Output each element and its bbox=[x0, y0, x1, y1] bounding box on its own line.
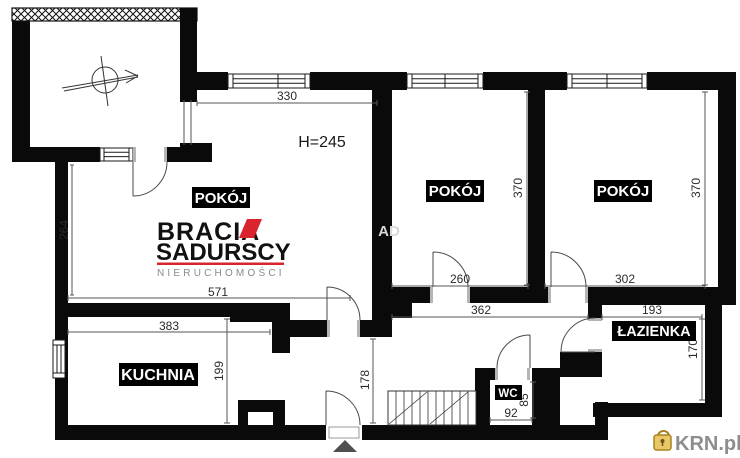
dim-330: 330 bbox=[277, 89, 297, 103]
balcony-left-wall bbox=[12, 8, 30, 160]
window-room1 bbox=[228, 74, 310, 88]
brand-line2: SADURSCY bbox=[156, 239, 291, 266]
north-arrow-icon bbox=[62, 56, 138, 106]
bottom-wall-left bbox=[55, 425, 326, 440]
dim-370-room2: 370 bbox=[511, 178, 525, 198]
balcony-door bbox=[133, 162, 167, 196]
brand-watermark-fragment: AD bbox=[378, 223, 400, 240]
wc-door bbox=[497, 335, 530, 368]
room-label-lazienka: ŁAZIENKA bbox=[617, 324, 691, 340]
room-label-kuchnia: KUCHNIA bbox=[121, 367, 195, 384]
brand-divider bbox=[157, 263, 284, 266]
room-label-wc: WC bbox=[498, 388, 517, 400]
dim-178: 178 bbox=[358, 370, 372, 390]
bathroom-bottom-wall bbox=[593, 403, 722, 417]
dim-92: 92 bbox=[504, 406, 518, 420]
balcony-railing bbox=[184, 100, 191, 145]
brand-tagline: NIERUCHOMOŚCI bbox=[157, 266, 285, 279]
balcony-corner-wall bbox=[180, 143, 212, 162]
ceiling-height-note: H=245 bbox=[298, 134, 346, 151]
wc-left-wall bbox=[475, 368, 490, 440]
window-kitchen bbox=[53, 340, 65, 378]
floor-plan: 330 571 383 260 302 362 193 92 264 199 1… bbox=[0, 0, 740, 458]
krn-watermark: KRN.pl bbox=[654, 431, 740, 455]
window-room2 bbox=[407, 74, 483, 88]
krn-logo-text: KRN.pl bbox=[675, 433, 740, 455]
wc-right-wall bbox=[532, 368, 560, 440]
balcony-right-wall bbox=[180, 8, 197, 102]
dim-302: 302 bbox=[615, 272, 635, 286]
dim-199: 199 bbox=[212, 361, 226, 381]
dim-370-room3: 370 bbox=[689, 178, 703, 198]
stairs bbox=[388, 391, 476, 425]
left-outer-wall bbox=[55, 150, 68, 440]
entrance-door bbox=[326, 391, 360, 425]
wall-room1-room2 bbox=[372, 72, 392, 337]
kitchen-right-wall bbox=[272, 303, 290, 353]
balcony-bottom-wall-right bbox=[167, 147, 180, 162]
entrance-door-panel bbox=[329, 427, 359, 438]
dim-362: 362 bbox=[471, 303, 491, 317]
balcony-hatched-wall bbox=[12, 8, 197, 21]
room3-door bbox=[551, 252, 586, 287]
window-balcony bbox=[100, 148, 133, 161]
bathroom-door bbox=[561, 318, 595, 352]
room-label-pokoj-1: POKÓJ bbox=[195, 189, 248, 207]
room1-door bbox=[327, 287, 360, 320]
floor-plan-page: 330 571 383 260 302 362 193 92 264 199 1… bbox=[0, 0, 740, 458]
dim-264: 264 bbox=[57, 220, 71, 240]
right-outer-wall bbox=[718, 72, 736, 303]
dim-571: 571 bbox=[208, 285, 228, 299]
dim-383: 383 bbox=[159, 319, 179, 333]
room-label-pokoj-2: POKÓJ bbox=[429, 182, 482, 200]
padlock-icon bbox=[654, 431, 671, 450]
window-room3 bbox=[567, 74, 647, 88]
entrance-marker bbox=[333, 440, 357, 452]
dim-170: 170 bbox=[686, 339, 700, 359]
wall-room2-room3 bbox=[528, 72, 545, 303]
room-label-pokoj-3: POKÓJ bbox=[597, 182, 650, 200]
dim-260: 260 bbox=[450, 272, 470, 286]
bathroom-right-wall bbox=[705, 290, 722, 417]
dim-193: 193 bbox=[642, 303, 662, 317]
brand-logo: BRACIA SADURSCY NIERUCHOMOŚCI AD bbox=[156, 218, 400, 279]
